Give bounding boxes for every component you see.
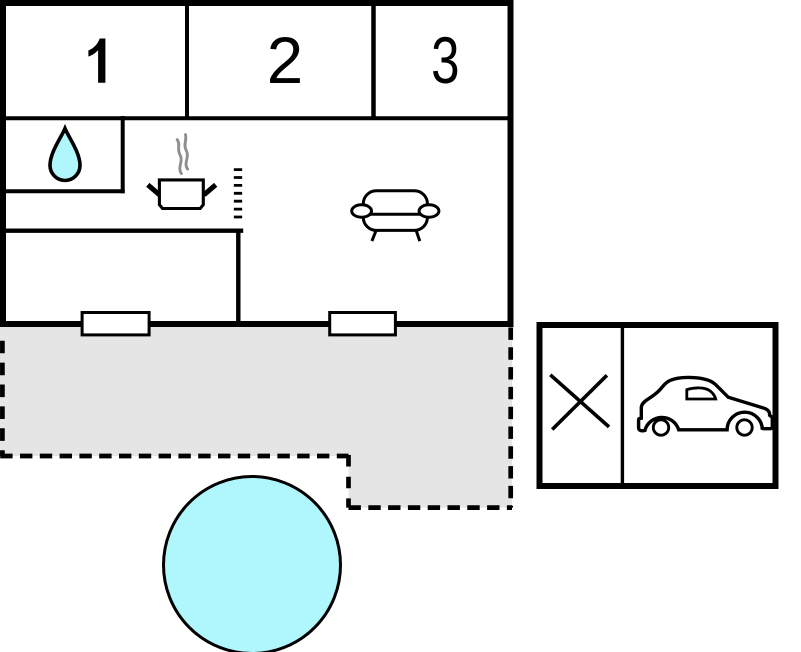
svg-text:3: 3 <box>431 25 459 97</box>
svg-text:2: 2 <box>267 24 303 97</box>
